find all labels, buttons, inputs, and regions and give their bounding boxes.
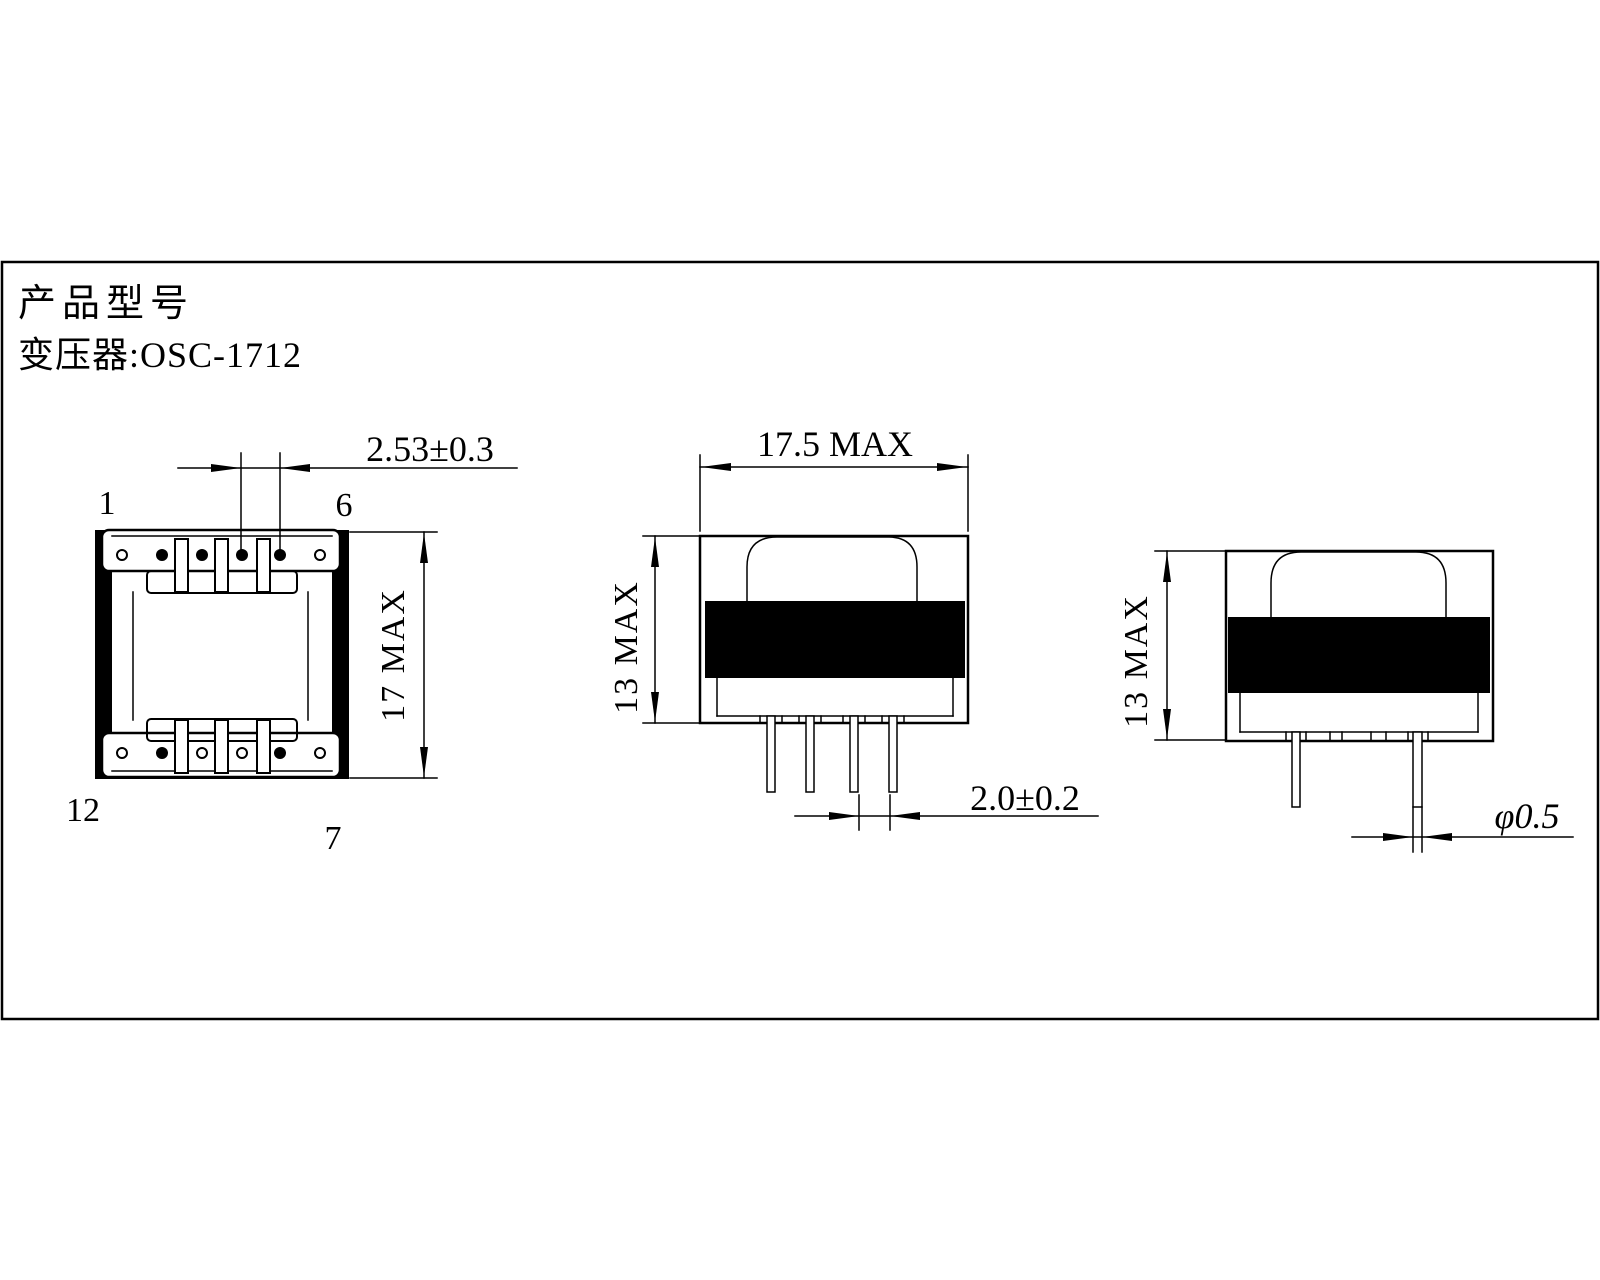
title-block: 产品型号 变压器:OSC-1712 xyxy=(18,283,302,375)
dim-text-height-13-front: 13 MAX xyxy=(608,580,645,714)
winding-band xyxy=(1228,617,1490,693)
winding-band xyxy=(705,601,965,678)
pin-dot xyxy=(156,549,168,561)
dim-text-height-13-side: 13 MAX xyxy=(1118,594,1155,728)
pin-label-12: 12 xyxy=(66,792,100,829)
drawing-sheet: 产品型号 变压器:OSC-1712 xyxy=(0,0,1600,1280)
pin-label-6: 6 xyxy=(336,487,353,524)
pin-dot xyxy=(274,747,286,759)
pin-hole xyxy=(237,748,247,758)
front-view: 17.5 MAX 13 MAX 2.0±0.2 xyxy=(608,424,1098,830)
pins xyxy=(1292,732,1422,807)
side-view: 13 MAX φ0.5 xyxy=(1118,551,1573,852)
dim-text-height-17: 17 MAX xyxy=(375,588,412,722)
dimension-width-175 xyxy=(700,455,968,531)
dim-text-pin-spacing: 2.0±0.2 xyxy=(970,778,1080,818)
pins xyxy=(767,716,897,792)
pin-hole xyxy=(197,748,207,758)
top-view: 1 6 12 7 2.53±0.3 17 MAX xyxy=(66,429,517,857)
pin-hole xyxy=(117,748,127,758)
dim-text-pin-diameter: φ0.5 xyxy=(1495,796,1560,836)
dim-text-pin-pitch: 2.53±0.3 xyxy=(366,429,494,469)
pin-hole xyxy=(315,748,325,758)
pin-dot xyxy=(236,549,248,561)
pin-label-1: 1 xyxy=(99,485,116,522)
pin-dot xyxy=(196,549,208,561)
dim-text-width-175: 17.5 MAX xyxy=(757,424,913,464)
dimension-height-13-front xyxy=(643,536,700,723)
dimension-height-13-side xyxy=(1155,551,1226,740)
transformer-model-text: 变压器:OSC-1712 xyxy=(18,335,302,375)
product-model-heading: 产品型号 xyxy=(18,283,194,325)
pin-label-7: 7 xyxy=(325,820,342,857)
pin-hole xyxy=(315,550,325,560)
pin-dot xyxy=(156,747,168,759)
pin-hole xyxy=(117,550,127,560)
